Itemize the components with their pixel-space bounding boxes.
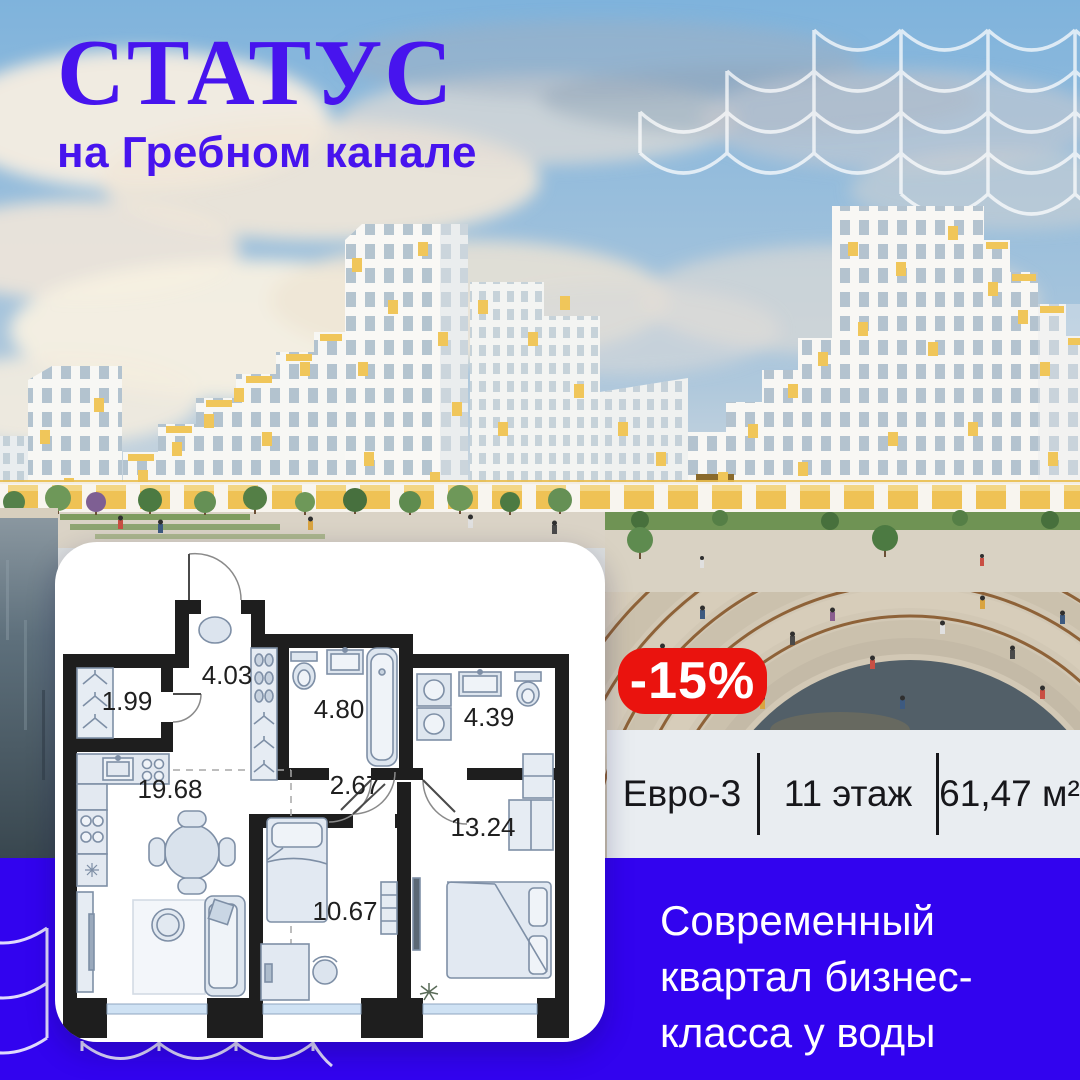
canal-water bbox=[0, 508, 58, 858]
area-label-wardrobe: 1.99 bbox=[102, 686, 153, 716]
brand-logo: СТАТУС на Гребном канале bbox=[57, 26, 477, 178]
retail-strip bbox=[0, 480, 1080, 516]
area-label-corridor: 2.67 bbox=[330, 770, 381, 800]
area-label-bathroom: 4.80 bbox=[314, 694, 365, 724]
apartment-type: Евро-3 bbox=[607, 773, 757, 815]
area-label-bathroom-2: 4.39 bbox=[464, 702, 515, 732]
tagline-line-2: квартал бизнес- bbox=[660, 949, 973, 1005]
plan-windows bbox=[107, 1004, 537, 1014]
discount-badge: -15% bbox=[618, 648, 767, 714]
area-label-bedroom-2: 13.24 bbox=[450, 812, 515, 842]
floor-plan-card: 1.99 4.03 4.80 4.39 19.68 2.67 13.24 10.… bbox=[55, 542, 605, 1042]
real-estate-poster: СТАТУС на Гребном канале Современный ква… bbox=[0, 0, 1080, 1080]
plan-furniture bbox=[77, 617, 553, 1000]
area-label-bedroom: 10.67 bbox=[312, 896, 377, 926]
area-label-kitchen-living: 19.68 bbox=[137, 774, 202, 804]
floor-plan: 1.99 4.03 4.80 4.39 19.68 2.67 13.24 10.… bbox=[55, 542, 605, 1042]
brand-title: СТАТУС bbox=[57, 26, 477, 122]
apartment-area: 61,47 м² bbox=[939, 773, 1080, 815]
tagline-line-1: Современный bbox=[660, 893, 973, 949]
apartment-info-bar: Евро-3 11 этаж 61,47 м² bbox=[607, 730, 1080, 858]
tagline-line-3: класса у воды bbox=[660, 1005, 973, 1061]
area-label-hall: 4.03 bbox=[202, 660, 253, 690]
right-promenade bbox=[605, 510, 1080, 594]
brand-subtitle: на Гребном канале bbox=[57, 128, 477, 178]
apartment-floor: 11 этаж bbox=[760, 773, 936, 815]
tagline: Современный квартал бизнес- класса у вод… bbox=[660, 893, 973, 1061]
